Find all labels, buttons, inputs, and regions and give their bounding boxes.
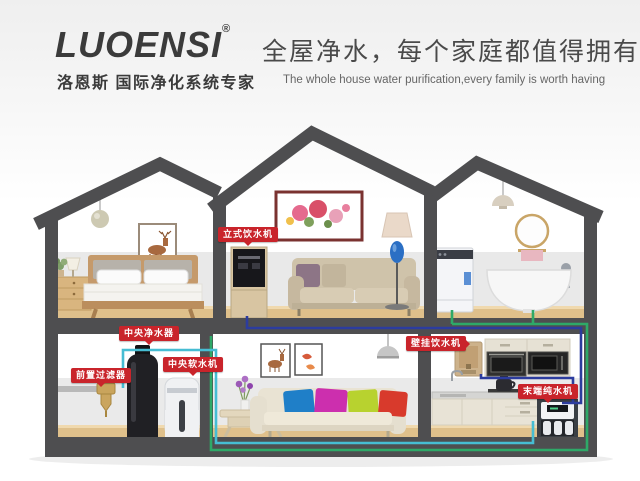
floor-slab-bottom [45,437,597,457]
deer-picture-living [261,344,290,377]
label-standing-dispenser: 立式饮水机 [218,227,278,242]
sofa-1f [250,388,408,437]
roof-right [433,163,601,217]
label-pre-filter: 前置过滤器 [71,368,131,383]
brand-text: LUOENSI [55,24,222,65]
wall-2f-living-bath [424,190,437,320]
poster: LUOENSI® 洛恩斯 国际净化系统专家 全屋净水，每个家庭都值得拥有 The… [0,0,640,481]
flower-painting [276,192,362,240]
brand-logo: LUOENSI® [55,24,231,66]
ro-machine [537,399,578,437]
registered-mark: ® [222,23,231,35]
wall-left [45,213,58,457]
slogan-chinese: 全屋净水，每个家庭都值得拥有 [262,32,640,68]
brand-subtitle: 洛恩斯 国际净化系统专家 [57,69,255,93]
oven [487,352,526,376]
slogan-english: The whole house water purification,every… [283,74,605,86]
roof-left [36,164,219,224]
label-central-softener: 中央软水机 [163,357,223,372]
label-wall-dispenser: 壁挂饮水机 [406,336,466,351]
pendant-lamp-living [377,334,399,359]
fish-picture-living [295,344,322,375]
wall-2f-bedroom-living [213,196,226,320]
central-softener-tank [165,378,199,437]
washing-machine [434,248,473,312]
label-terminal-purifier: 末端纯水机 [518,384,578,399]
label-central-purifier: 中央净水器 [119,326,179,341]
microwave [528,352,568,374]
central-purifier-tank [127,345,158,437]
standing-dispenser-device [231,247,267,318]
